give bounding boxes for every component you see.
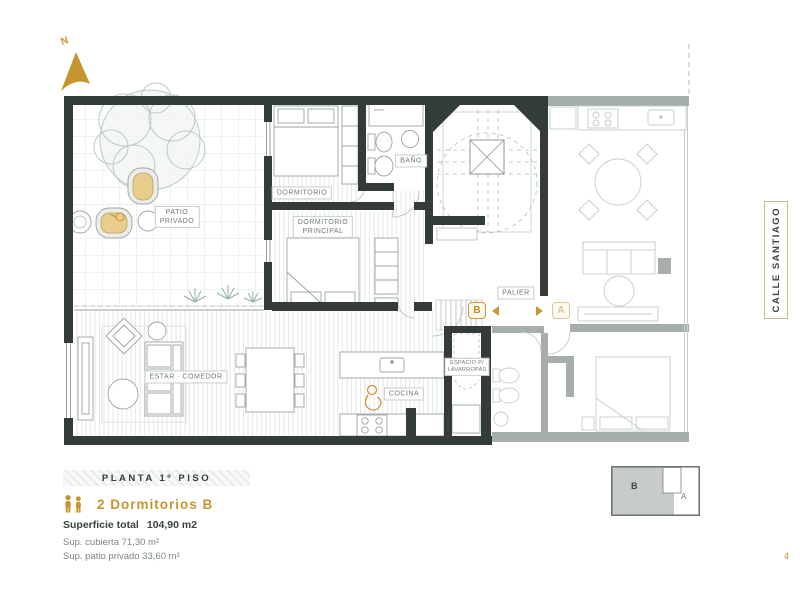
keyplan: B A <box>611 466 700 516</box>
sup-patio: Sup. patio privado 33,60 m² <box>63 551 180 562</box>
floor-band: PLANTA 1º PISO <box>63 470 250 486</box>
unit-title: 2 Dormitorios B <box>97 497 213 512</box>
room-label-estar: ESTAR · COMEDOR <box>144 370 227 383</box>
keyplan-graphic <box>611 466 700 516</box>
room-label-dormitorio: DORMITORIO <box>272 186 332 199</box>
arrow-left-icon <box>492 306 499 316</box>
room-label-lavarropas: ESPACIO P/ LAVARROPAS <box>444 358 489 376</box>
brochure-page: N PATIO PRIVADO DORMITORIO DORMITORIO PR… <box>0 0 800 600</box>
arrow-right-icon <box>536 306 543 316</box>
room-label-bano: BAÑO <box>395 154 427 167</box>
two-persons-icon <box>62 494 90 514</box>
unit-a-marker: A <box>552 302 570 319</box>
room-label-lavarropas-line1: ESPACIO P/ <box>447 360 486 367</box>
keyplan-unit-b-label: B <box>631 481 638 491</box>
room-label-patio-line2: PRIVADO <box>160 217 195 226</box>
street-label-box: CALLE SANTIAGO <box>764 201 788 319</box>
room-label-principal-line2: PRINCIPAL <box>298 227 348 236</box>
street-label: CALLE SANTIAGO <box>771 207 782 312</box>
room-label-principal-line1: DORMITORIO <box>298 218 348 227</box>
room-label-palier: PALIER <box>497 286 534 299</box>
superficie-label: Superficie total <box>63 519 139 531</box>
superficie-value: 104,90 m2 <box>147 519 197 531</box>
page-number: 4 <box>784 551 789 561</box>
north-arrow-icon <box>61 52 90 91</box>
room-label-cocina: COCINA <box>384 387 424 400</box>
room-label-patio-line1: PATIO <box>160 208 195 217</box>
room-label-principal: DORMITORIO PRINCIPAL <box>293 216 353 238</box>
superficie-total: Superficie total104,90 m2 <box>63 519 197 531</box>
room-label-lavarropas-line2: LAVARROPAS <box>447 367 486 374</box>
keyplan-unit-a-label: A <box>681 492 686 501</box>
unit-b-marker: B <box>468 302 486 319</box>
unit-title-row: 2 Dormitorios B <box>62 494 213 514</box>
sup-cubierta: Sup. cubierta 71,30 m² <box>63 537 159 548</box>
bedroom1-furniture <box>274 106 358 184</box>
room-label-patio: PATIO PRIVADO <box>155 206 200 228</box>
